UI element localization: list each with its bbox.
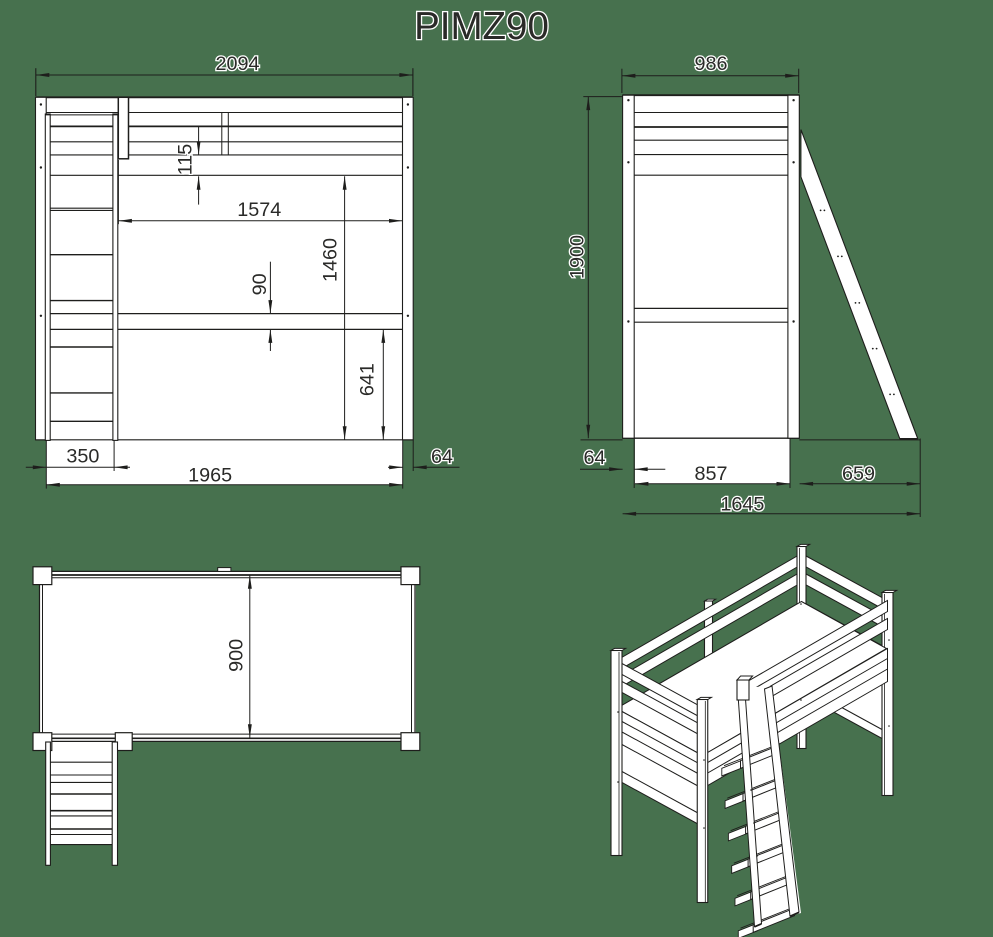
- svg-text:350: 350: [66, 446, 99, 468]
- svg-text:1900: 1900: [567, 235, 589, 279]
- svg-text:857: 857: [694, 463, 727, 485]
- svg-text:1645: 1645: [720, 494, 764, 516]
- svg-text:659: 659: [842, 463, 875, 485]
- svg-text:1574: 1574: [237, 199, 281, 221]
- svg-text:90: 90: [249, 273, 271, 295]
- svg-text:641: 641: [357, 363, 379, 396]
- svg-text:900: 900: [226, 639, 248, 672]
- svg-text:986: 986: [694, 53, 727, 75]
- svg-text:2094: 2094: [215, 53, 259, 75]
- svg-text:PIMZ90: PIMZ90: [414, 5, 549, 48]
- svg-text:64: 64: [431, 446, 453, 468]
- svg-text:115: 115: [175, 144, 197, 176]
- svg-text:1460: 1460: [320, 238, 342, 282]
- svg-text:64: 64: [583, 447, 605, 469]
- svg-text:1965: 1965: [188, 465, 232, 487]
